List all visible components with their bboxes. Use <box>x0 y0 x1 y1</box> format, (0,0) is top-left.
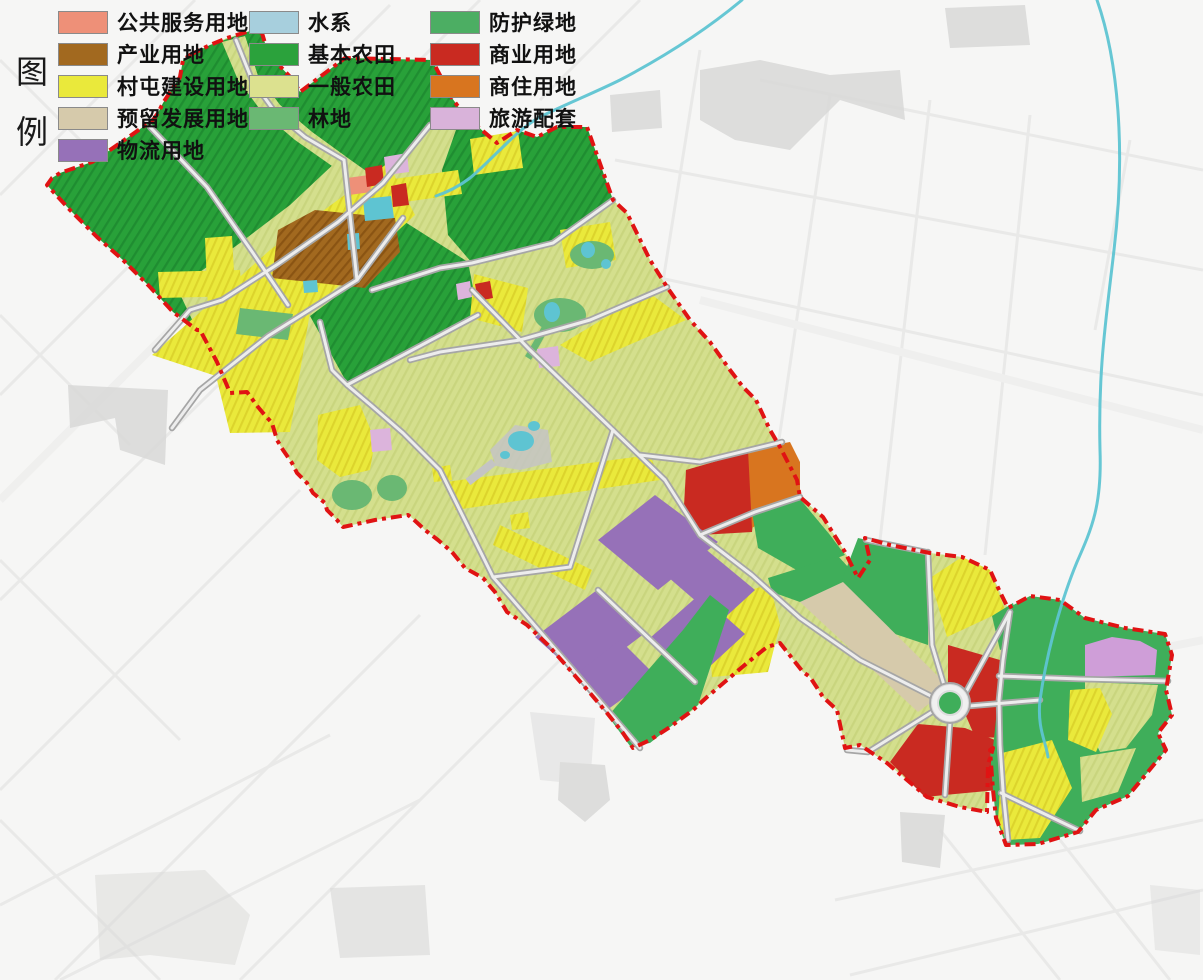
public-service-swatch <box>58 11 108 34</box>
reserved-development-swatch <box>58 107 108 130</box>
legend-label: 产业用地 <box>117 39 205 69</box>
village-construction-swatch <box>58 75 108 98</box>
logistics-swatch <box>58 139 108 162</box>
legend: 图 例 公共服务用地 产业用地 村屯建设用地 预留发展用地 物流用地 水系 <box>0 0 620 180</box>
legend-item-water: 水系 <box>249 10 396 34</box>
legend-item-general-farmland: 一般农田 <box>249 74 396 98</box>
water-swatch <box>249 11 299 34</box>
legend-item-village-construction: 村屯建设用地 <box>58 74 249 98</box>
legend-label: 一般农田 <box>308 71 396 101</box>
legend-column-2: 水系 基本农田 一般农田 林地 <box>249 10 396 138</box>
legend-label: 预留发展用地 <box>117 103 249 133</box>
commercial-swatch <box>430 43 480 66</box>
commercial-residential-swatch <box>430 75 480 98</box>
legend-label: 水系 <box>308 7 352 37</box>
legend-label: 旅游配套 <box>489 103 577 133</box>
legend-label: 基本农田 <box>308 39 396 69</box>
general-farmland-swatch <box>249 75 299 98</box>
legend-item-reserved-development: 预留发展用地 <box>58 106 249 130</box>
forest-swatch <box>249 107 299 130</box>
legend-item-protective-green: 防护绿地 <box>430 10 577 34</box>
basic-farmland-swatch <box>249 43 299 66</box>
tourism-swatch <box>430 107 480 130</box>
legend-item-tourism: 旅游配套 <box>430 106 577 130</box>
legend-label: 商业用地 <box>489 39 577 69</box>
legend-label: 商住用地 <box>489 71 577 101</box>
legend-label: 物流用地 <box>117 135 205 165</box>
protective-green-swatch <box>430 11 480 34</box>
legend-item-forest: 林地 <box>249 106 396 130</box>
legend-title: 图 例 <box>16 42 48 162</box>
planning-map-screenshot: 图 例 公共服务用地 产业用地 村屯建设用地 预留发展用地 物流用地 水系 <box>0 0 1203 980</box>
legend-column-3: 防护绿地 商业用地 商住用地 旅游配套 <box>430 10 577 138</box>
roundabout <box>930 683 970 723</box>
legend-item-commercial-residential: 商住用地 <box>430 74 577 98</box>
legend-column-1: 公共服务用地 产业用地 村屯建设用地 预留发展用地 物流用地 <box>58 10 249 170</box>
legend-item-public-service: 公共服务用地 <box>58 10 249 34</box>
legend-item-industry: 产业用地 <box>58 42 249 66</box>
legend-item-basic-farmland: 基本农田 <box>249 42 396 66</box>
industry-swatch <box>58 43 108 66</box>
legend-item-logistics: 物流用地 <box>58 138 249 162</box>
legend-label: 林地 <box>308 103 352 133</box>
legend-label: 防护绿地 <box>489 7 577 37</box>
legend-item-commercial: 商业用地 <box>430 42 577 66</box>
legend-label: 公共服务用地 <box>117 7 249 37</box>
legend-label: 村屯建设用地 <box>117 71 249 101</box>
